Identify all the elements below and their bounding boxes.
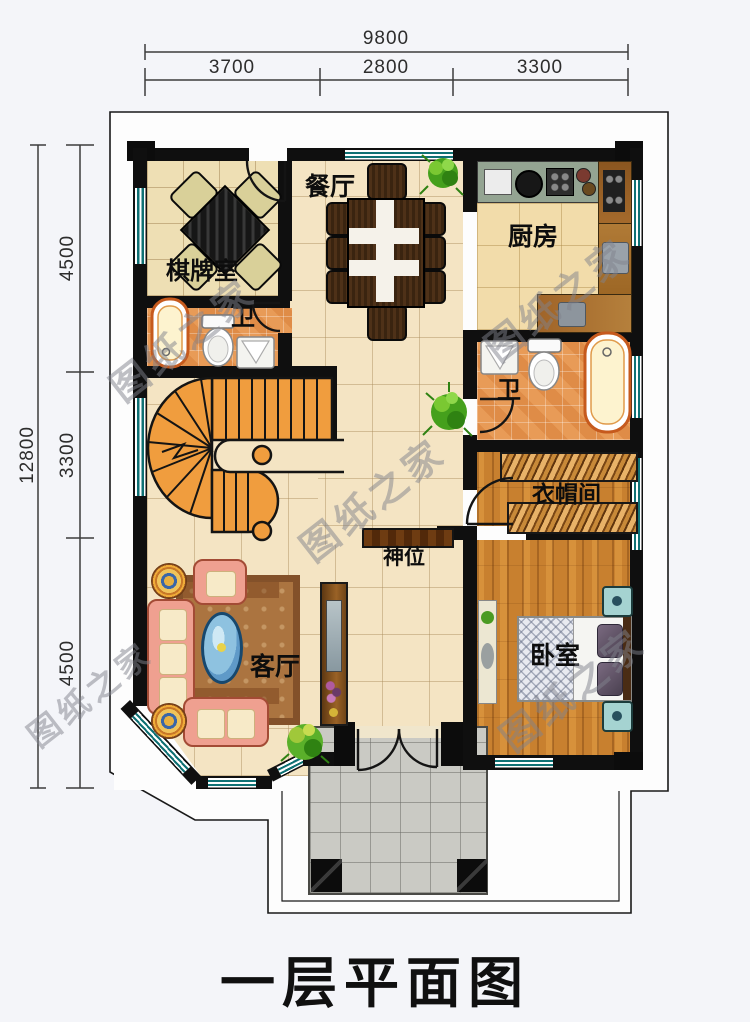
door-chess-room (247, 161, 285, 201)
dim-top-segment: 3300 (517, 57, 563, 79)
dim-left-segment: 3300 (57, 432, 79, 478)
dim-top-total: 9800 (363, 28, 409, 50)
dim-top-segment: 2800 (363, 57, 409, 79)
room-label-shrine: 神位 (383, 541, 425, 571)
page-title: 一层平面图 (0, 938, 750, 1018)
plant (420, 155, 463, 195)
plant (281, 724, 329, 763)
room-label-cloakroom: 衣帽间 (532, 475, 601, 509)
plant (423, 382, 472, 436)
room-label-bath-right: 卫 (497, 370, 521, 405)
dim-top-segment: 3700 (209, 57, 255, 79)
room-label-living: 客厅 (250, 647, 300, 683)
door-bedroom (467, 478, 513, 524)
door-porch-double (358, 729, 437, 770)
room-label-kitchen: 厨房 (508, 217, 558, 253)
floor-plan-canvas: 9800 3700 2800 3300 12800 4500 3300 4500… (0, 0, 750, 1022)
dim-left-total: 12800 (17, 426, 39, 484)
room-label-dining: 餐厅 (305, 167, 355, 203)
dim-left-segment: 4500 (57, 235, 79, 281)
